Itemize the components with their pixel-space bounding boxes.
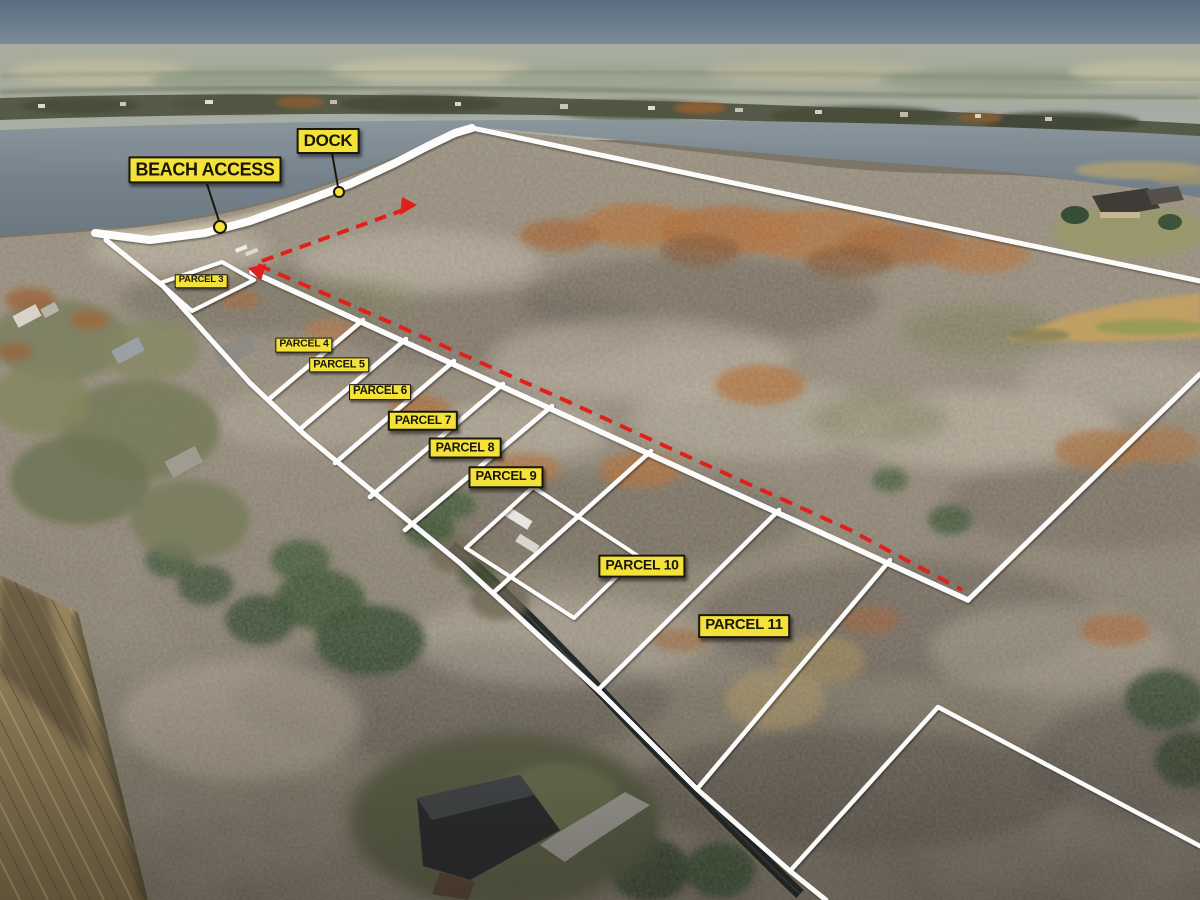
divider-9-10 xyxy=(493,451,651,593)
beach-access-pointer-line xyxy=(207,184,219,221)
parcel-overlay xyxy=(0,0,1200,900)
dock-dot xyxy=(334,187,344,197)
access-route xyxy=(258,265,962,590)
divider-7-8 xyxy=(370,384,503,497)
parcel3-outline xyxy=(160,262,254,311)
dock-route xyxy=(262,209,406,261)
divider-6-7 xyxy=(335,361,454,463)
dock-pointer-line xyxy=(332,153,338,187)
dock-route-arrowhead-icon xyxy=(400,197,417,215)
divider-10-11 xyxy=(598,510,779,690)
west-edge xyxy=(106,240,163,286)
beach-access-dot xyxy=(214,221,226,233)
north-boundary xyxy=(472,128,1200,281)
east-boundary xyxy=(968,374,1200,600)
home-lot-outline xyxy=(466,487,638,618)
divider-8-9 xyxy=(405,406,552,530)
parcel11-se-edge xyxy=(697,560,890,789)
shoreline-band xyxy=(95,128,472,240)
se-corner-lines xyxy=(790,707,1200,871)
aerial-parcel-map: BEACH ACCESS DOCK PARCEL 3PARCEL 4PARCEL… xyxy=(0,0,1200,900)
